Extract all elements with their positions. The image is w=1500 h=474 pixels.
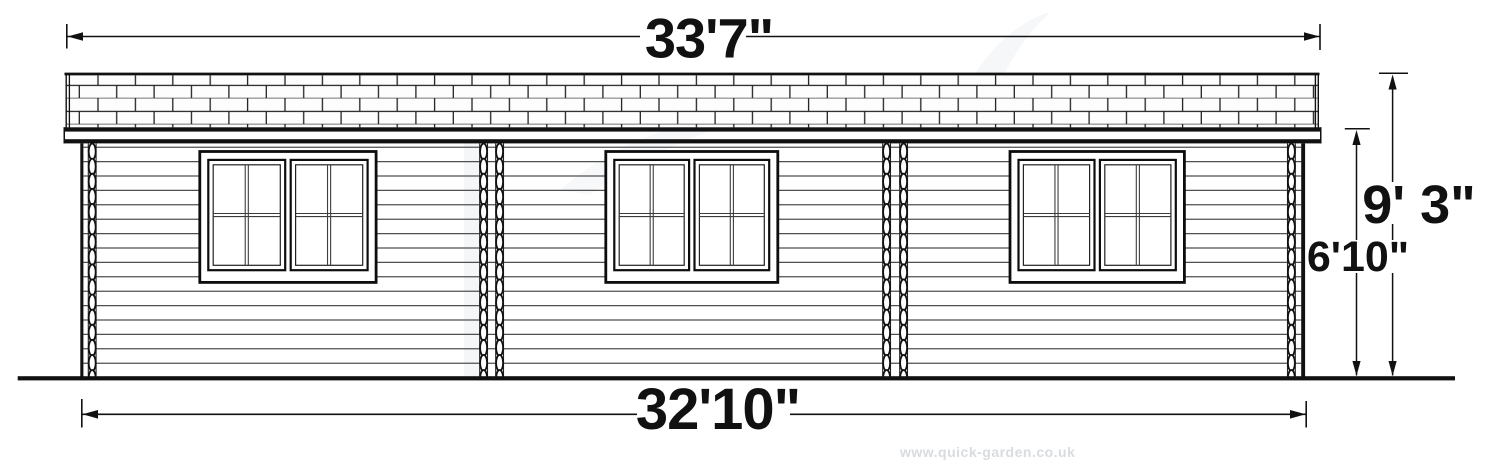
svg-text:33'7": 33'7" bbox=[645, 7, 773, 70]
svg-text:9' 3": 9' 3" bbox=[1362, 175, 1476, 235]
svg-text:32'10": 32'10" bbox=[636, 377, 800, 442]
svg-text:6'10": 6'10" bbox=[1307, 233, 1409, 281]
svg-text:www.quick-garden.co.uk: www.quick-garden.co.uk bbox=[899, 444, 1075, 460]
